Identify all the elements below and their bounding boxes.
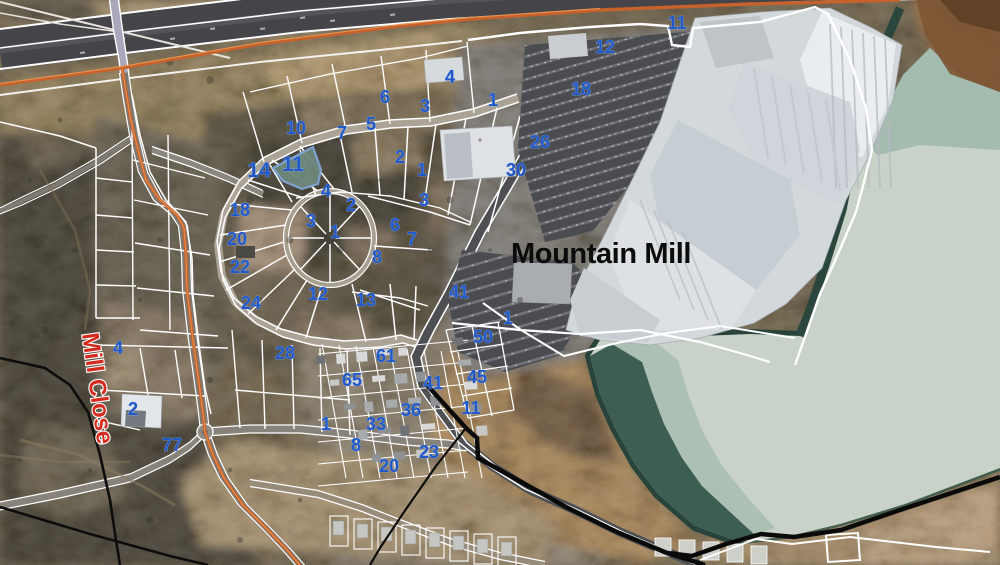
svg-text:14: 14: [247, 159, 271, 182]
svg-text:4: 4: [113, 338, 123, 358]
svg-text:1: 1: [330, 222, 340, 242]
svg-text:41: 41: [423, 373, 443, 393]
svg-text:20: 20: [227, 229, 247, 249]
svg-text:2: 2: [128, 399, 138, 419]
svg-text:10: 10: [286, 118, 306, 138]
svg-text:7: 7: [337, 123, 347, 143]
svg-text:Mountain Mill: Mountain Mill: [511, 238, 691, 270]
svg-text:2: 2: [395, 147, 405, 167]
svg-text:4: 4: [445, 67, 455, 87]
svg-text:20: 20: [379, 456, 399, 476]
svg-text:1: 1: [321, 414, 331, 434]
svg-text:12: 12: [595, 37, 615, 57]
svg-text:13: 13: [356, 290, 376, 310]
svg-text:65: 65: [342, 370, 362, 390]
svg-text:18: 18: [571, 79, 591, 99]
svg-text:3: 3: [306, 211, 316, 231]
svg-text:11: 11: [282, 153, 305, 176]
svg-text:36: 36: [401, 400, 421, 420]
svg-text:3: 3: [419, 190, 429, 210]
svg-text:5: 5: [366, 114, 376, 134]
svg-text:1: 1: [503, 308, 513, 328]
svg-text:33: 33: [366, 414, 386, 434]
svg-text:2: 2: [346, 195, 356, 215]
svg-text:6: 6: [390, 215, 400, 235]
svg-text:8: 8: [372, 247, 382, 267]
svg-text:8: 8: [351, 435, 361, 455]
svg-text:30: 30: [506, 160, 526, 180]
svg-text:28: 28: [275, 343, 295, 363]
svg-text:24: 24: [241, 293, 261, 313]
svg-text:11: 11: [461, 398, 480, 418]
svg-text:12: 12: [308, 284, 328, 304]
svg-text:4: 4: [321, 181, 331, 201]
svg-text:50: 50: [473, 327, 493, 347]
svg-text:18: 18: [230, 200, 250, 220]
svg-text:1: 1: [417, 160, 427, 180]
svg-text:41: 41: [449, 282, 469, 302]
svg-text:61: 61: [376, 346, 396, 366]
svg-text:22: 22: [230, 257, 250, 277]
svg-text:26: 26: [530, 132, 550, 152]
svg-text:23: 23: [419, 442, 439, 462]
svg-text:1: 1: [488, 90, 498, 110]
svg-text:77: 77: [162, 435, 182, 455]
svg-text:45: 45: [467, 367, 487, 387]
svg-text:7: 7: [407, 229, 417, 249]
svg-text:11: 11: [667, 13, 686, 33]
svg-text:3: 3: [420, 96, 430, 116]
svg-text:6: 6: [380, 87, 390, 107]
